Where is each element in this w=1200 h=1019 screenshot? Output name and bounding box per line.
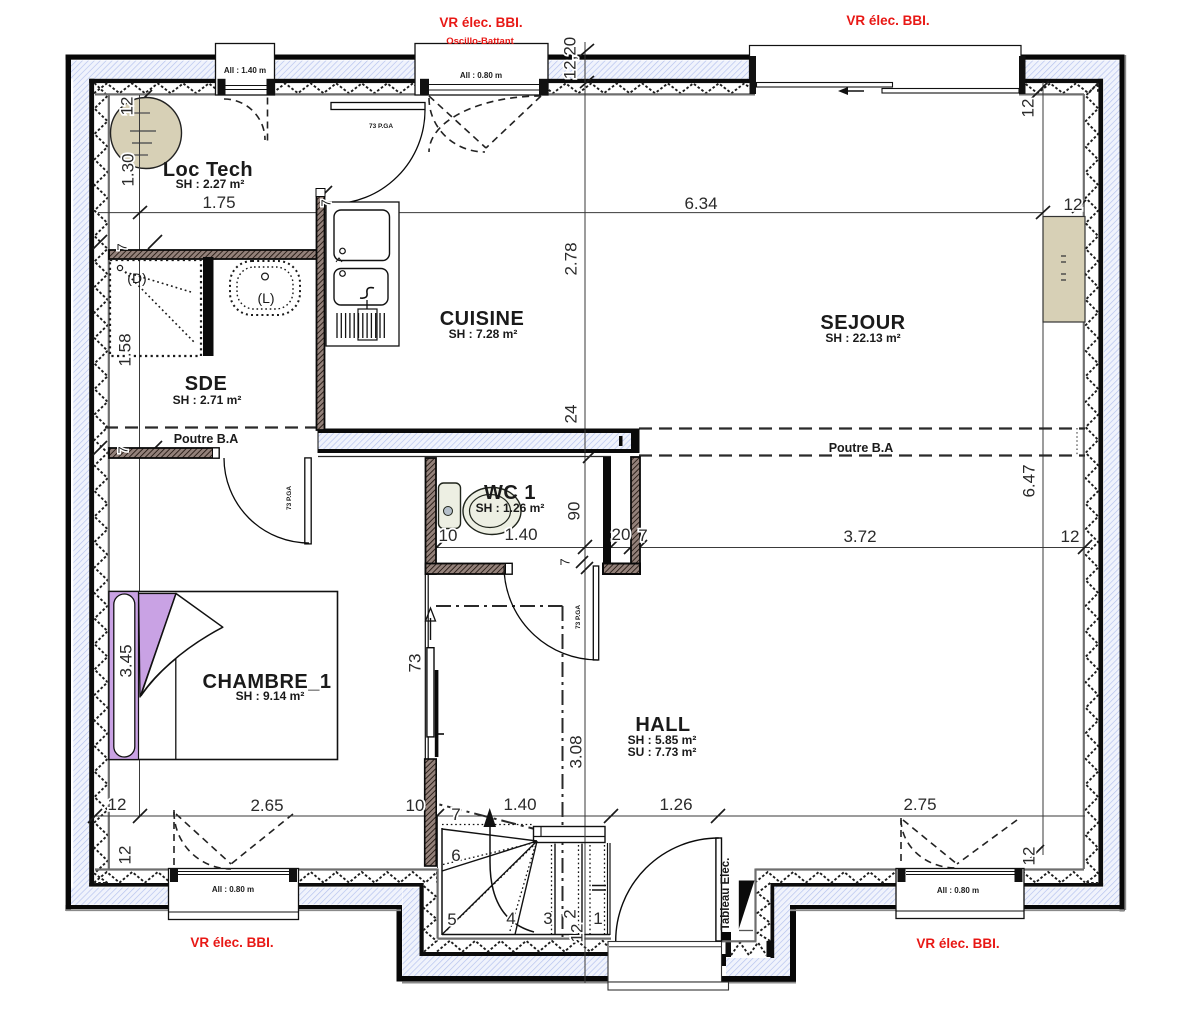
svg-text:3.72: 3.72 xyxy=(843,527,876,546)
svg-text:3.45: 3.45 xyxy=(116,644,135,677)
svg-text:SH : 2.27 m²: SH : 2.27 m² xyxy=(176,177,245,191)
svg-text:All : 1.40 m: All : 1.40 m xyxy=(224,66,266,75)
svg-text:SH : 7.28 m²: SH : 7.28 m² xyxy=(449,327,518,341)
svg-text:6.47: 6.47 xyxy=(1019,464,1038,497)
svg-text:24: 24 xyxy=(561,405,580,424)
svg-text:2.75: 2.75 xyxy=(903,795,936,814)
svg-text:VR élec. BBI.: VR élec. BBI. xyxy=(916,936,999,951)
svg-text:1.58: 1.58 xyxy=(115,333,134,366)
svg-text:SU : 7.73 m²: SU : 7.73 m² xyxy=(628,745,697,759)
svg-text:SH : 9.14 m²: SH : 9.14 m² xyxy=(236,689,305,703)
svg-text:12: 12 xyxy=(1061,527,1080,546)
svg-text:7: 7 xyxy=(451,805,460,824)
svg-text:All : 0.80 m: All : 0.80 m xyxy=(212,885,254,894)
svg-text:2.65: 2.65 xyxy=(250,796,283,815)
svg-text:12: 12 xyxy=(1064,195,1083,214)
svg-text:All : 0.80 m: All : 0.80 m xyxy=(937,886,979,895)
svg-text:7: 7 xyxy=(115,446,130,453)
svg-text:10: 10 xyxy=(439,526,458,545)
svg-text:3.08: 3.08 xyxy=(566,735,585,768)
svg-text:12: 12 xyxy=(1019,847,1038,866)
svg-text:12: 12 xyxy=(567,924,586,943)
svg-text:VR élec. BBI.: VR élec. BBI. xyxy=(190,935,273,950)
svg-text:1.26: 1.26 xyxy=(659,795,692,814)
svg-text:20: 20 xyxy=(612,525,631,544)
svg-text:1.40: 1.40 xyxy=(504,525,537,544)
svg-text:7: 7 xyxy=(638,526,647,545)
svg-text:12: 12 xyxy=(117,97,136,116)
svg-text:4: 4 xyxy=(506,909,515,928)
svg-text:1.40: 1.40 xyxy=(503,795,536,814)
svg-text:Tableau Elec.: Tableau Elec. xyxy=(720,858,732,931)
svg-text:12: 12 xyxy=(115,846,134,865)
svg-text:Poutre B.A: Poutre B.A xyxy=(829,441,894,455)
svg-text:6.34: 6.34 xyxy=(684,194,717,213)
svg-text:(L): (L) xyxy=(257,290,274,306)
svg-text:6: 6 xyxy=(451,846,460,865)
svg-text:7: 7 xyxy=(114,243,129,250)
svg-text:VR élec. BBI.: VR élec. BBI. xyxy=(439,15,522,30)
svg-text:12: 12 xyxy=(108,795,127,814)
svg-text:73 P.GA: 73 P.GA xyxy=(369,123,393,130)
svg-text:73 P.GA: 73 P.GA xyxy=(286,486,293,510)
svg-text:1: 1 xyxy=(593,909,602,928)
svg-text:SH : 2.71 m²: SH : 2.71 m² xyxy=(173,393,242,407)
svg-text:10: 10 xyxy=(406,796,425,815)
svg-text:SH : 1.26 m²: SH : 1.26 m² xyxy=(476,501,545,515)
svg-text:Poutre B.A: Poutre B.A xyxy=(174,432,239,446)
svg-text:7: 7 xyxy=(557,558,572,565)
svg-text:Oscillo-Battant: Oscillo-Battant xyxy=(446,36,514,47)
svg-text:2: 2 xyxy=(560,909,579,918)
svg-text:SDE: SDE xyxy=(185,373,228,395)
svg-text:1.30: 1.30 xyxy=(118,153,137,186)
svg-text:12: 12 xyxy=(1018,99,1037,118)
svg-text:(D): (D) xyxy=(127,270,146,286)
svg-text:SH : 22.13 m²: SH : 22.13 m² xyxy=(825,331,900,345)
svg-text:1.75: 1.75 xyxy=(202,193,235,212)
svg-text:7: 7 xyxy=(318,199,333,206)
svg-text:VR élec. BBI.: VR élec. BBI. xyxy=(846,13,929,28)
svg-text:90: 90 xyxy=(564,502,583,521)
svg-text:12,20: 12,20 xyxy=(560,37,579,80)
svg-text:5: 5 xyxy=(447,910,456,929)
svg-text:All : 0.80 m: All : 0.80 m xyxy=(460,71,502,80)
svg-text:2.78: 2.78 xyxy=(561,242,580,275)
svg-text:3: 3 xyxy=(543,909,552,928)
svg-text:73: 73 xyxy=(405,654,424,673)
svg-text:73 P.GA: 73 P.GA xyxy=(575,605,582,629)
